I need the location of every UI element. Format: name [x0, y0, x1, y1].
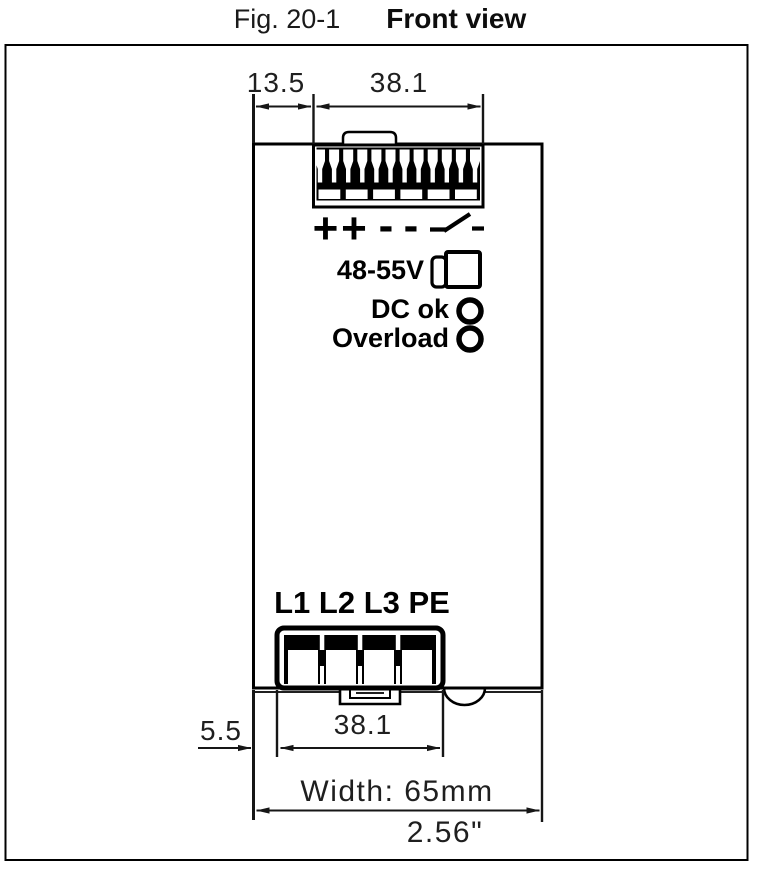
dimension-value: 13.5 — [247, 67, 306, 98]
dimension-value: 5.5 — [200, 715, 242, 746]
din-rail-area — [254, 688, 543, 705]
mounting-notch-arc — [444, 688, 485, 705]
dimension-top-offset: 13.5 — [247, 67, 314, 144]
front-view-drawing: + + - - 48-55V DC ok Overload — [0, 0, 760, 871]
output-minus-1: - — [379, 201, 394, 250]
dimension-bottom-offset: 5.5 — [198, 690, 277, 820]
figure-page: Fig. 20-1Front view — [0, 0, 760, 871]
dimension-top-width: 38.1 — [317, 67, 484, 144]
dimension-value: 38.1 — [370, 67, 429, 98]
dimension-bottom-width: 38.1 — [281, 690, 444, 757]
output-plus-1: + — [313, 204, 339, 253]
dimension-overall-width: Width: 65mm 2.56" — [257, 690, 543, 849]
voltage-adjust-row: 48-55V — [337, 252, 480, 287]
dc-ok-row: DC ok — [371, 294, 481, 324]
output-minus-2: - — [404, 201, 419, 250]
dc-ok-label: DC ok — [371, 294, 450, 324]
overload-label: Overload — [332, 323, 449, 353]
bottom-terminal-block — [277, 628, 443, 688]
pot-knob — [446, 252, 480, 287]
pot-slot — [432, 257, 446, 287]
output-plus-2: + — [341, 204, 367, 253]
dimension-value-inches: 2.56" — [407, 816, 484, 849]
overload-led-icon — [459, 328, 481, 350]
output-voltage-label: 48-55V — [337, 255, 424, 285]
dimension-value-metric: Width: 65mm — [300, 775, 493, 808]
input-terminal-labels: L1 L2 L3 PE — [274, 585, 450, 620]
dc-ok-led-icon — [459, 300, 481, 322]
dimension-value: 38.1 — [334, 709, 393, 740]
voltage-potentiometer-icon — [432, 252, 480, 287]
